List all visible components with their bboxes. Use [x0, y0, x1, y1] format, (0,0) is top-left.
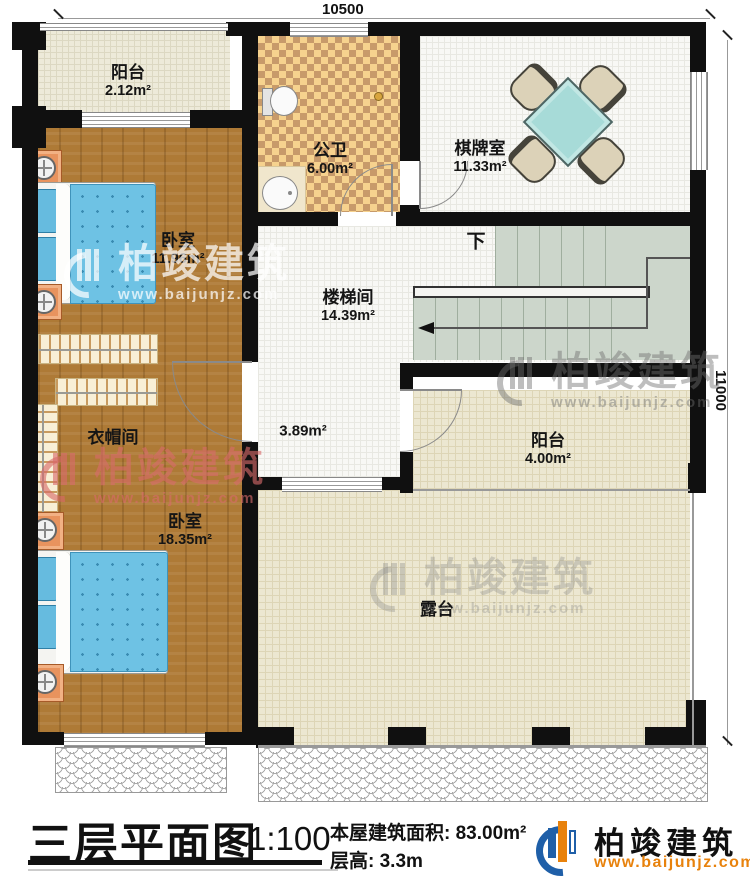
- room-name: 棋牌室: [453, 139, 506, 159]
- balcony-terrace-divider: [413, 489, 690, 491]
- wardrobe-rail: [38, 334, 158, 364]
- hall-area-label: 3.89m²: [279, 423, 327, 440]
- room-name: 楼梯间: [321, 288, 375, 308]
- room-area: 18.35m²: [158, 531, 212, 548]
- room-label-game-room: 棋牌室 11.33m²: [453, 139, 506, 175]
- stair-path-line-top: [646, 257, 690, 259]
- wall: [205, 732, 258, 745]
- terrace-floor: [258, 490, 690, 745]
- stairwell-floor-lower: [258, 362, 400, 477]
- stair-lower-flight: [413, 292, 615, 360]
- logo-bar: [569, 830, 576, 854]
- toilet-bowl: [270, 86, 298, 116]
- room-label-stairwell: 楼梯间 14.39m²: [321, 288, 375, 324]
- wall: [242, 477, 282, 490]
- wall-right: [690, 22, 706, 72]
- door-leaf: [391, 164, 393, 216]
- room-label-bedroom-2: 卧室 18.35m²: [158, 512, 212, 548]
- stair-upper-flight: [495, 226, 615, 292]
- floor-plan-page: 阳台 2.12m² 公卫 6.00m² 棋牌室 11.33m² 卧室 11.96…: [0, 0, 750, 887]
- dimension-tick: [722, 30, 733, 41]
- room-label-cloakroom: 衣帽间: [88, 428, 139, 448]
- brand-website: www.baijunjz.com: [594, 854, 750, 872]
- roof-tile-band: [258, 747, 708, 802]
- door-leaf: [400, 389, 462, 391]
- door-knob-icon: [374, 92, 383, 101]
- door-leaf: [419, 161, 421, 209]
- dimension-line-top: [58, 18, 710, 19]
- wall-center: [242, 22, 258, 362]
- stair-direction-arrow-icon: [418, 322, 434, 334]
- room-area: 14.39m²: [321, 307, 375, 324]
- room-area: 2.12m²: [105, 82, 151, 99]
- room-area: 11.33m²: [453, 158, 506, 175]
- room-name: 卧室: [158, 512, 212, 532]
- title-underline-light: [28, 869, 338, 871]
- room-label-terrace: 露台: [420, 600, 454, 620]
- door-leaf: [172, 361, 252, 363]
- room-area: 4.00m²: [525, 450, 571, 467]
- dimension-height-label: 11000: [712, 370, 729, 411]
- room-label-bedroom-1: 卧室 11.96m²: [151, 231, 204, 267]
- wall: [38, 110, 82, 128]
- wardrobe-rail: [55, 378, 158, 406]
- wall: [190, 110, 242, 128]
- window: [282, 477, 382, 492]
- room-name: 阳台: [525, 431, 571, 451]
- room-name: 公卫: [307, 141, 353, 161]
- wall-divider: [400, 205, 420, 226]
- pillar: [400, 463, 413, 493]
- room-name: 阳台: [105, 63, 151, 83]
- pillar: [688, 463, 706, 493]
- wall-right: [690, 170, 706, 493]
- room-label-balcony-right: 阳台 4.00m²: [525, 431, 571, 467]
- stair-path-line-vertical: [646, 258, 648, 329]
- wall: [226, 22, 290, 36]
- wall-divider: [400, 22, 420, 161]
- stair-lower-landing: [615, 292, 690, 360]
- room-name: 露台: [420, 600, 454, 620]
- wall: [242, 212, 338, 226]
- room-name: 卧室: [151, 231, 204, 251]
- stair-upper-landing: [615, 226, 690, 292]
- bed-blanket: [70, 184, 156, 304]
- room-name: 衣帽间: [88, 428, 139, 448]
- window: [690, 72, 708, 170]
- terrace-edge: [692, 493, 694, 745]
- sink: [262, 176, 298, 210]
- room-area: 11.96m²: [151, 250, 204, 267]
- stair-railing: [413, 286, 650, 298]
- title-underline: [28, 860, 322, 865]
- wall: [400, 363, 413, 390]
- room-label-balcony-top: 阳台 2.12m²: [105, 63, 151, 99]
- window: [64, 733, 205, 747]
- window: [82, 112, 190, 128]
- wall: [22, 732, 64, 745]
- room-label-bathroom: 公卫 6.00m²: [307, 141, 353, 177]
- roof-tile-band: [55, 747, 227, 793]
- plan-scale: 1:100: [248, 820, 331, 858]
- dimension-width-label: 10500: [322, 1, 364, 18]
- logo-bar: [548, 828, 556, 858]
- stair-path-line: [432, 327, 648, 329]
- logo-bar: [558, 821, 567, 862]
- floor-height-text: 层高: 3.3m: [330, 846, 423, 873]
- bed-blanket: [70, 552, 168, 672]
- room-area: 6.00m²: [307, 160, 353, 177]
- wall: [413, 363, 690, 377]
- stair-down-label: 下: [466, 227, 485, 254]
- brand-logo-icon: [536, 816, 586, 874]
- building-area-text: 本屋建筑面积: 83.00m²: [330, 818, 526, 845]
- wall: [420, 212, 706, 226]
- balcony-railing: [40, 23, 228, 31]
- window: [290, 23, 368, 37]
